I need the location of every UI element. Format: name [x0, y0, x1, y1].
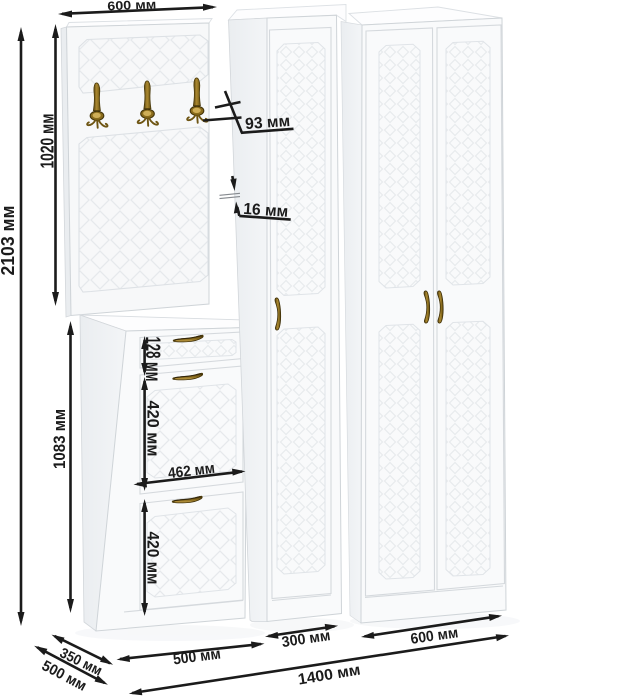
svg-text:2103 мм: 2103 мм	[0, 206, 18, 276]
svg-text:1020 мм: 1020 мм	[37, 114, 58, 169]
svg-text:600 мм: 600 мм	[107, 0, 157, 13]
svg-text:420 мм: 420 мм	[144, 401, 163, 457]
svg-text:128 мм: 128 мм	[141, 337, 164, 382]
svg-text:93 мм: 93 мм	[245, 113, 291, 133]
svg-text:16 мм: 16 мм	[243, 201, 289, 221]
svg-text:1083 мм: 1083 мм	[51, 409, 69, 469]
svg-text:420 мм: 420 мм	[144, 532, 163, 585]
